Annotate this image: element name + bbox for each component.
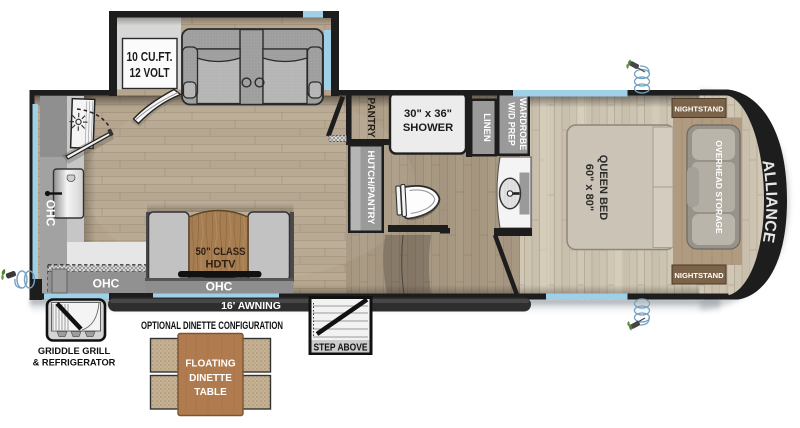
svg-text:16' AWNING: 16' AWNING: [221, 300, 281, 312]
svg-text:30" x 36": 30" x 36": [404, 108, 452, 120]
svg-text:STEP ABOVE: STEP ABOVE: [314, 342, 368, 354]
svg-text:10 CU.FT.: 10 CU.FT.: [127, 50, 173, 64]
svg-text:NIGHTSTAND: NIGHTSTAND: [674, 105, 724, 114]
svg-text:60" x 80": 60" x 80": [583, 164, 595, 211]
svg-text:SHOWER: SHOWER: [403, 122, 453, 134]
svg-text:OPTIONAL DINETTE CONFIGURATION: OPTIONAL DINETTE CONFIGURATION: [141, 320, 283, 332]
svg-text:HUTCH/PANTRY: HUTCH/PANTRY: [365, 151, 376, 226]
svg-text:FLOATING: FLOATING: [185, 359, 236, 370]
svg-text:OVERHEAD STORAGE: OVERHEAD STORAGE: [714, 140, 724, 234]
svg-text:GRIDDLE GRILL: GRIDDLE GRILL: [38, 346, 111, 356]
svg-text:OHC: OHC: [44, 200, 58, 227]
svg-text:DINETTE: DINETTE: [189, 373, 232, 384]
svg-text:TABLE: TABLE: [194, 387, 227, 398]
svg-text:W/D PREP: W/D PREP: [507, 102, 517, 146]
svg-text:NIGHTSTAND: NIGHTSTAND: [674, 271, 724, 280]
svg-text:& REFRIGERATOR: & REFRIGERATOR: [33, 358, 116, 368]
svg-text:WARDROBE: WARDROBE: [518, 98, 528, 150]
svg-text:50" CLASS: 50" CLASS: [196, 246, 246, 258]
svg-text:QUEEN BED: QUEEN BED: [597, 155, 609, 220]
svg-text:PANTRY: PANTRY: [365, 98, 376, 138]
svg-text:12 VOLT: 12 VOLT: [130, 66, 170, 80]
svg-text:OHC: OHC: [206, 280, 233, 294]
svg-text:OHC: OHC: [93, 277, 120, 291]
svg-text:LINEN: LINEN: [481, 113, 492, 142]
svg-text:HDTV: HDTV: [206, 259, 237, 271]
